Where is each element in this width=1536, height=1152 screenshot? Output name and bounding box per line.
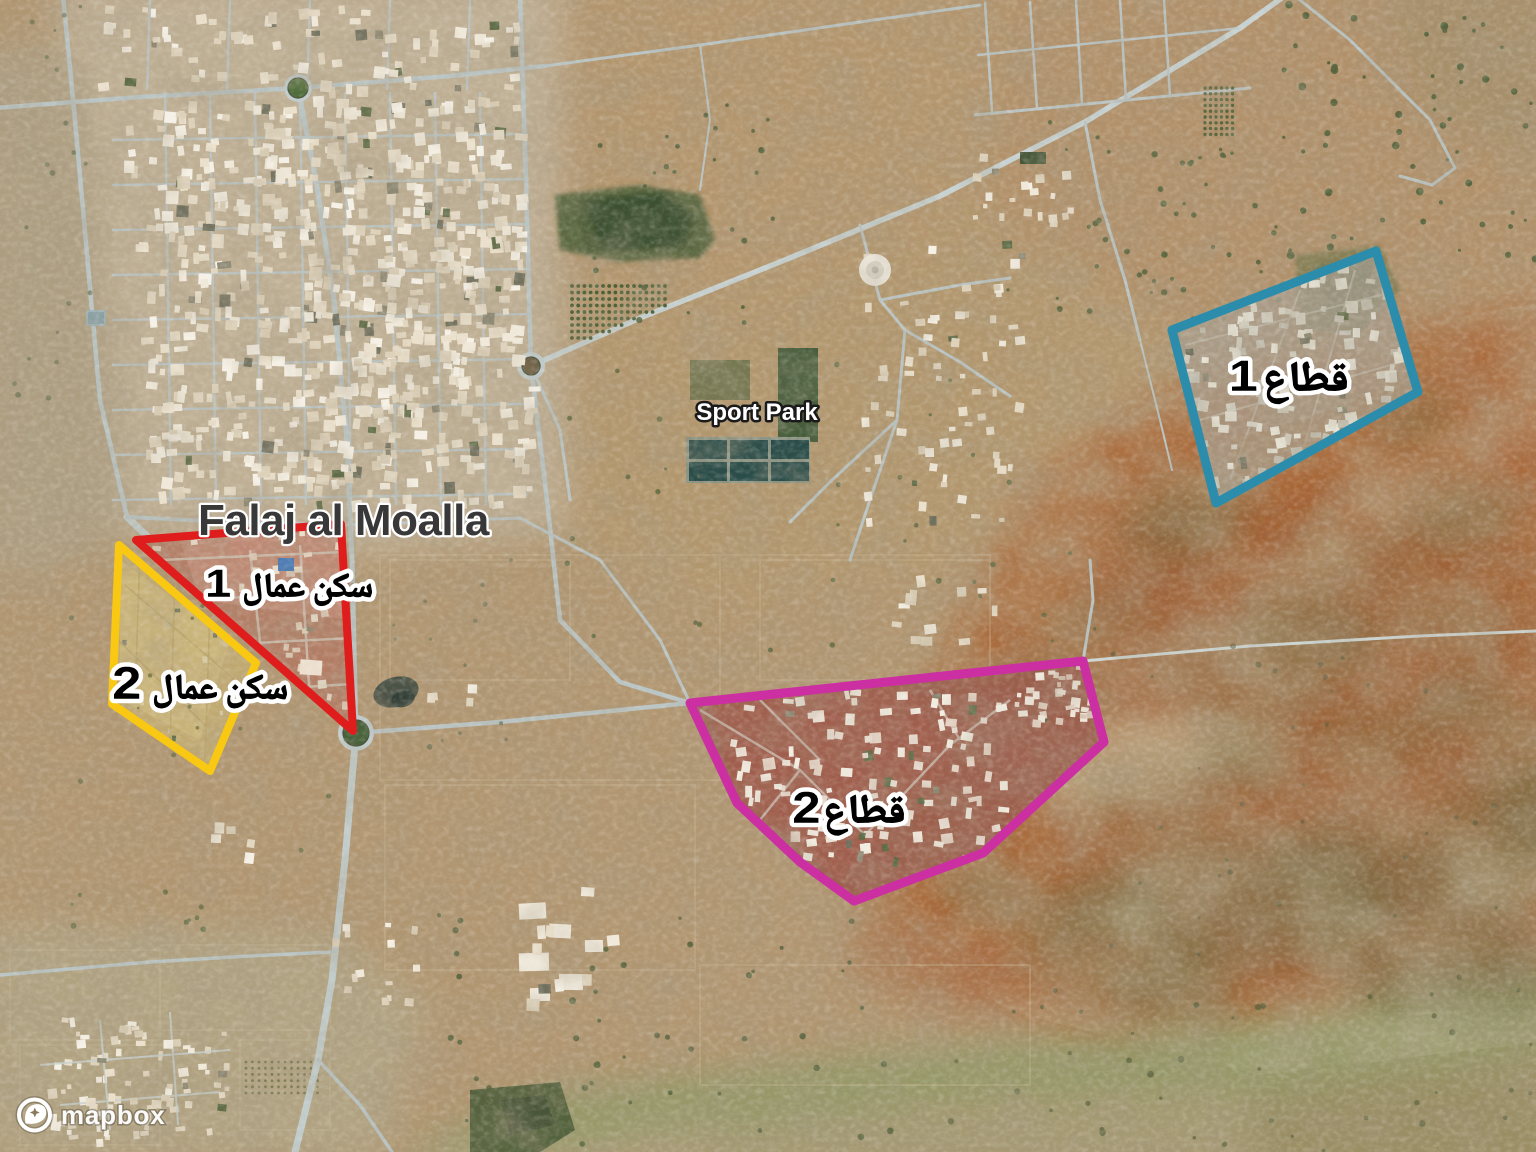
svg-text:Sport Park: Sport Park — [696, 399, 818, 426]
svg-text:Falaj al Moalla: Falaj al Moalla — [198, 496, 490, 545]
svg-text:mapbox: mapbox — [61, 1100, 165, 1130]
